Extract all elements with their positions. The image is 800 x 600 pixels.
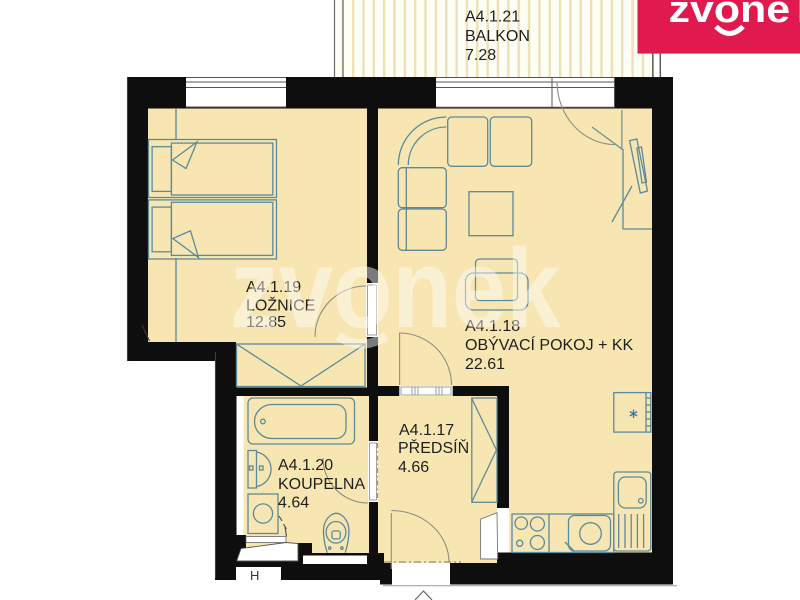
svg-text:4.64: 4.64 (278, 495, 309, 512)
svg-text:A4.1.17: A4.1.17 (399, 422, 454, 439)
svg-text:4.66: 4.66 (398, 459, 429, 476)
svg-text:A4.1.20: A4.1.20 (278, 457, 333, 474)
svg-text:KOUPELNA: KOUPELNA (278, 476, 365, 493)
svg-text:zvonek: zvonek (230, 227, 561, 352)
svg-text:A4.1.21: A4.1.21 (465, 9, 520, 26)
svg-text:BALKON: BALKON (465, 28, 530, 45)
svg-text:7.28: 7.28 (465, 47, 496, 64)
svg-text:PŘEDSÍŇ: PŘEDSÍŇ (398, 438, 469, 457)
svg-text:zvone: zvone (669, 0, 791, 30)
svg-text:22.61: 22.61 (465, 356, 505, 373)
svg-text:H: H (250, 568, 259, 583)
